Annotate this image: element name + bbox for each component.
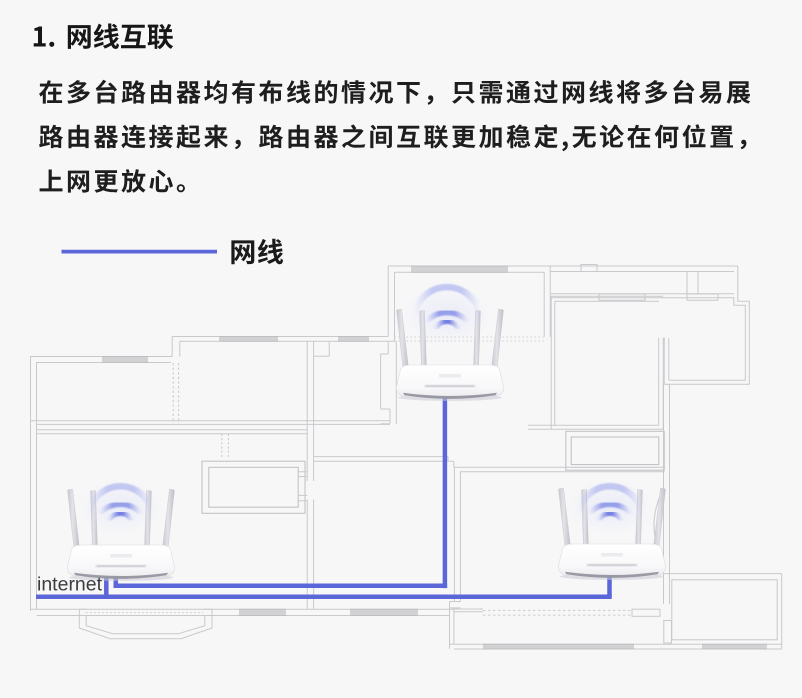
svg-text:internet: internet [37,574,103,596]
